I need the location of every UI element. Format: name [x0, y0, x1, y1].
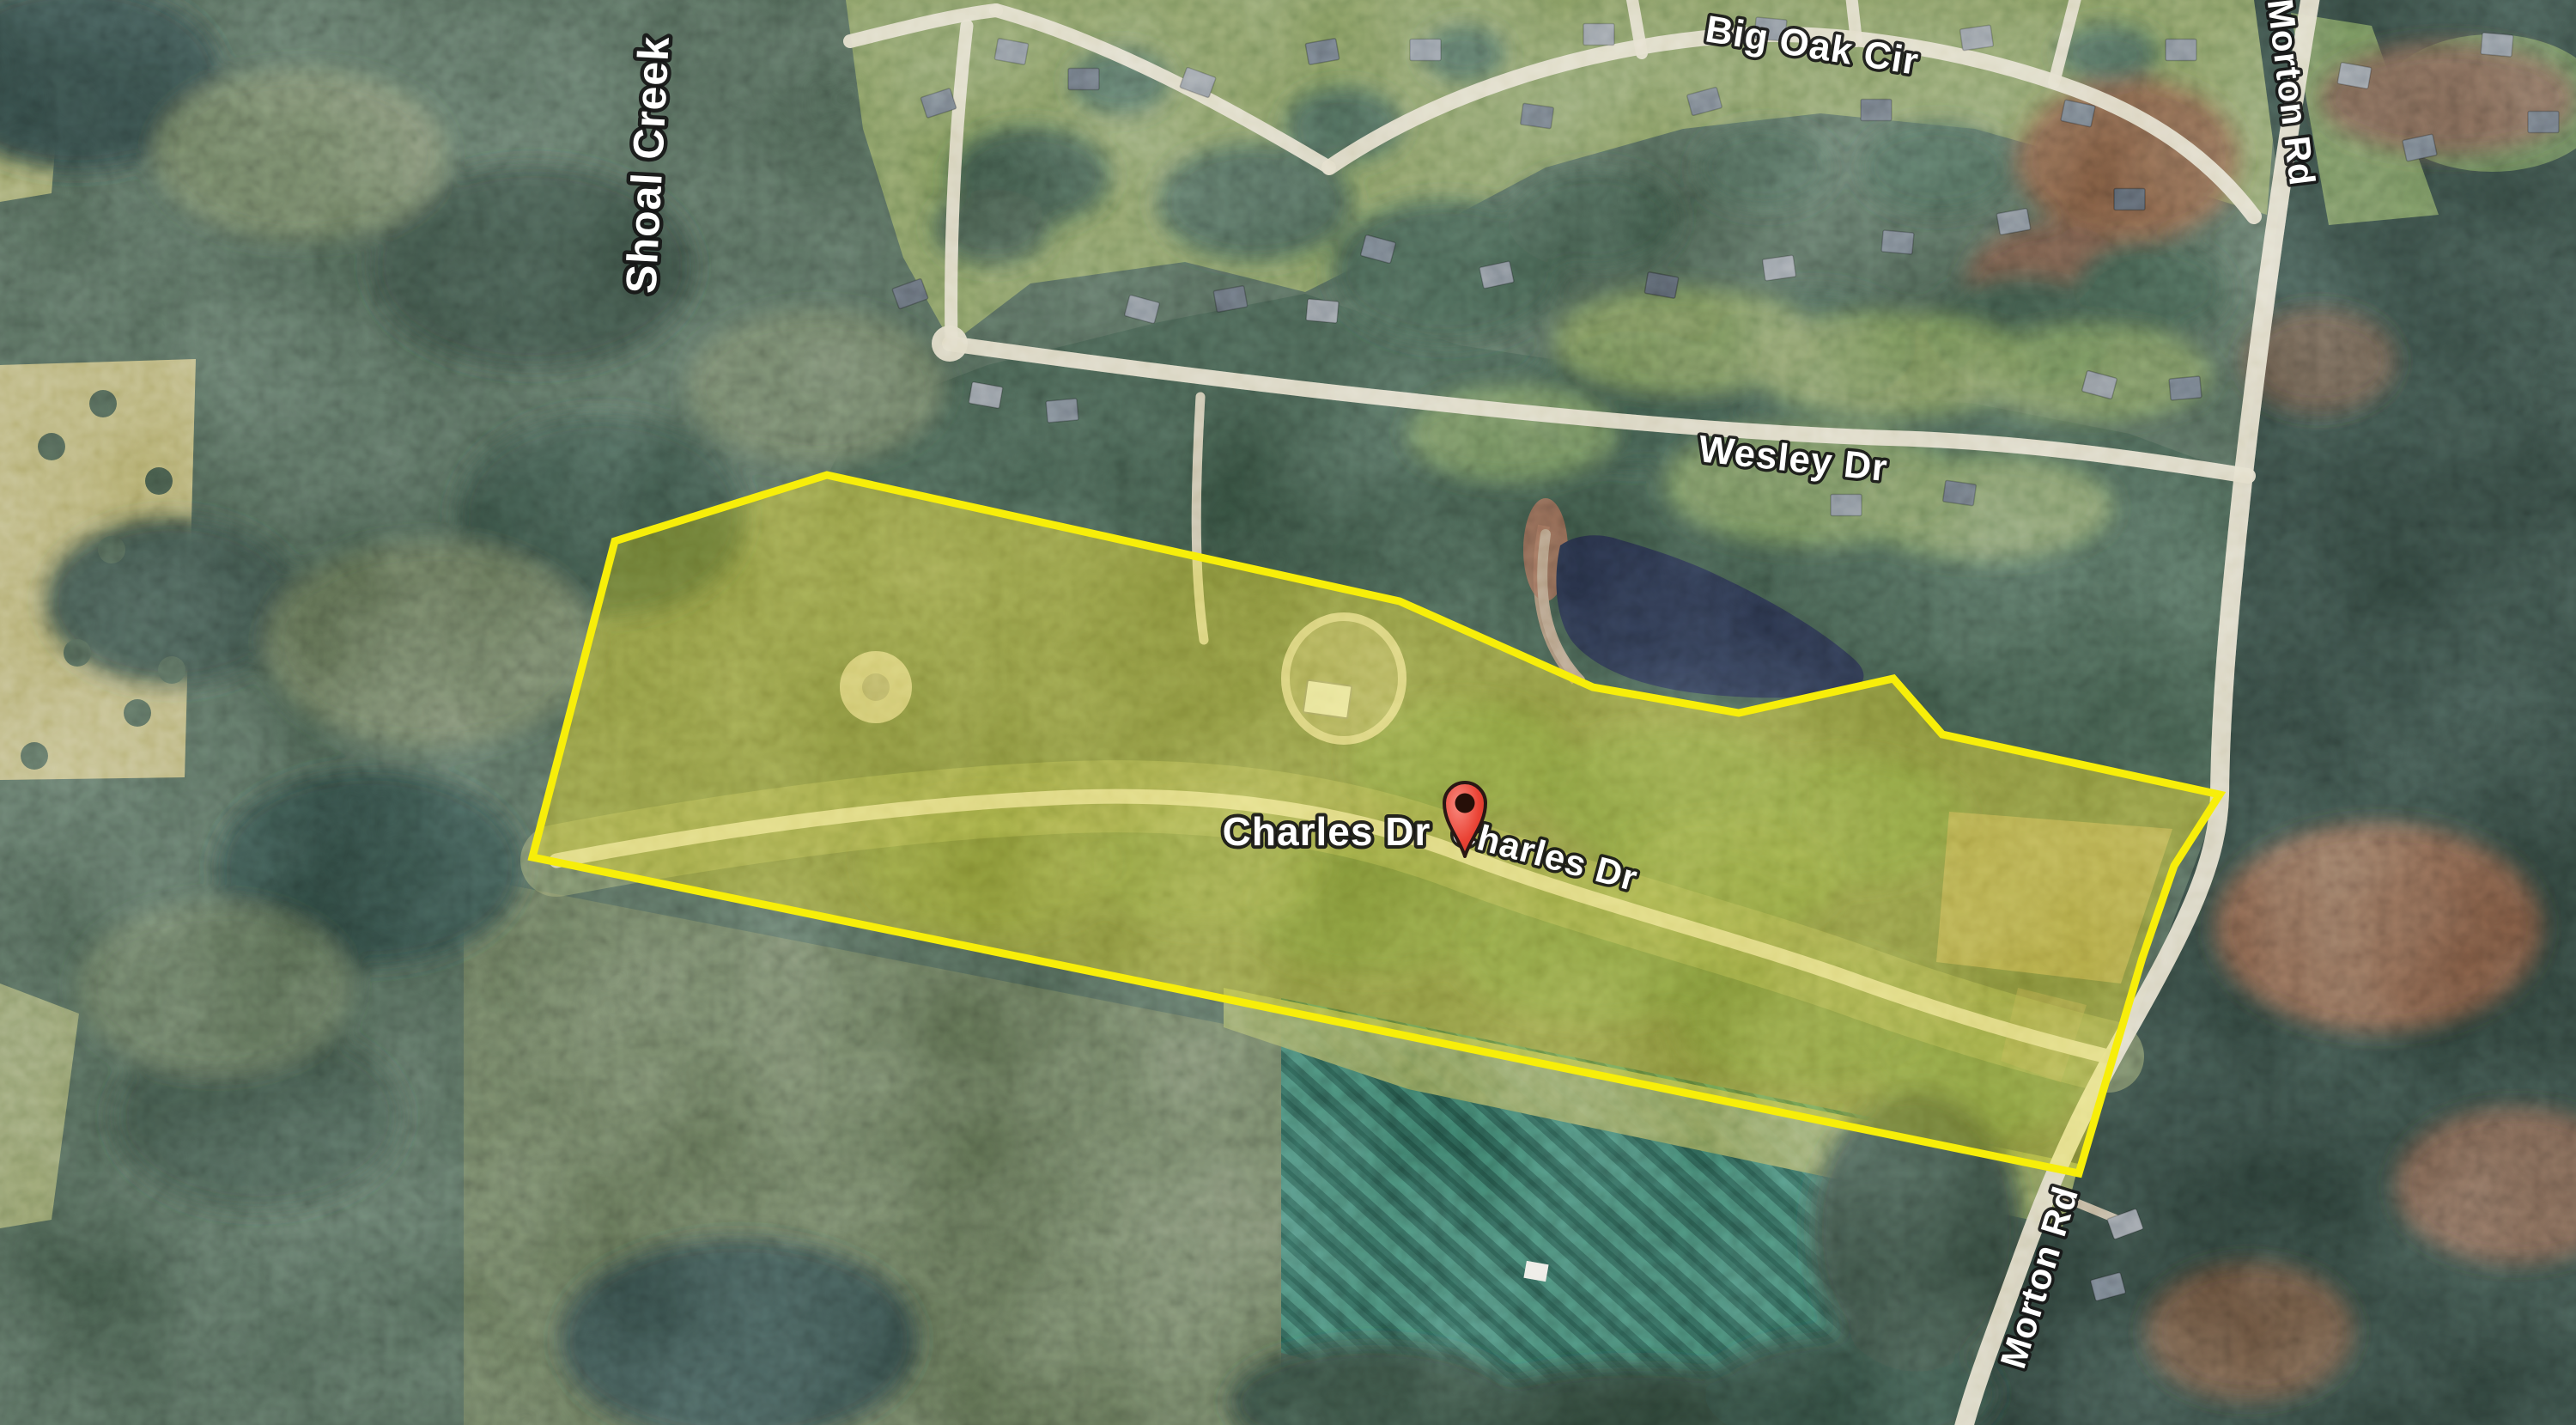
- satellite-map: Shoal CreekBig Oak CirMorton RdWesley Dr…: [0, 0, 2576, 1425]
- satellite-map-canvas[interactable]: Shoal CreekBig Oak CirMorton RdWesley Dr…: [0, 0, 2576, 1425]
- label-charles-dr-place: Charles Dr: [1223, 809, 1431, 854]
